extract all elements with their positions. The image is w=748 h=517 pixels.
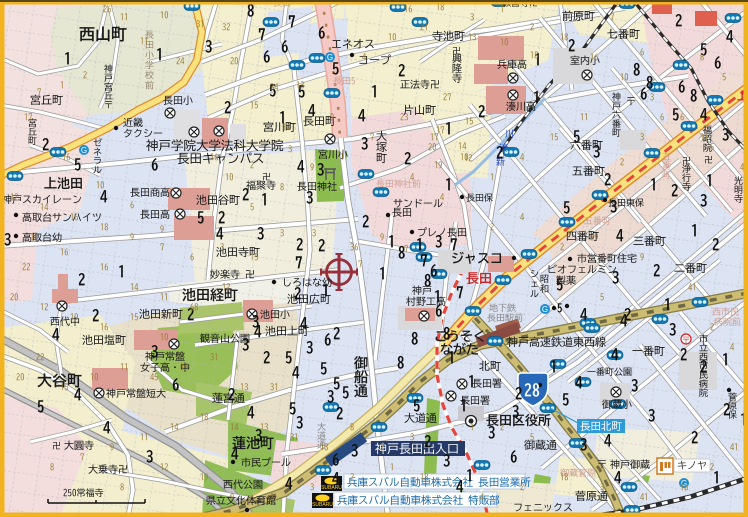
- svg-text:G: G: [327, 53, 333, 62]
- svg-text:G: G: [81, 146, 87, 155]
- svg-text:SUBARU: SUBARU: [321, 485, 342, 491]
- svg-text:G: G: [542, 305, 548, 314]
- svg-text:SUBARU: SUBARU: [312, 502, 333, 508]
